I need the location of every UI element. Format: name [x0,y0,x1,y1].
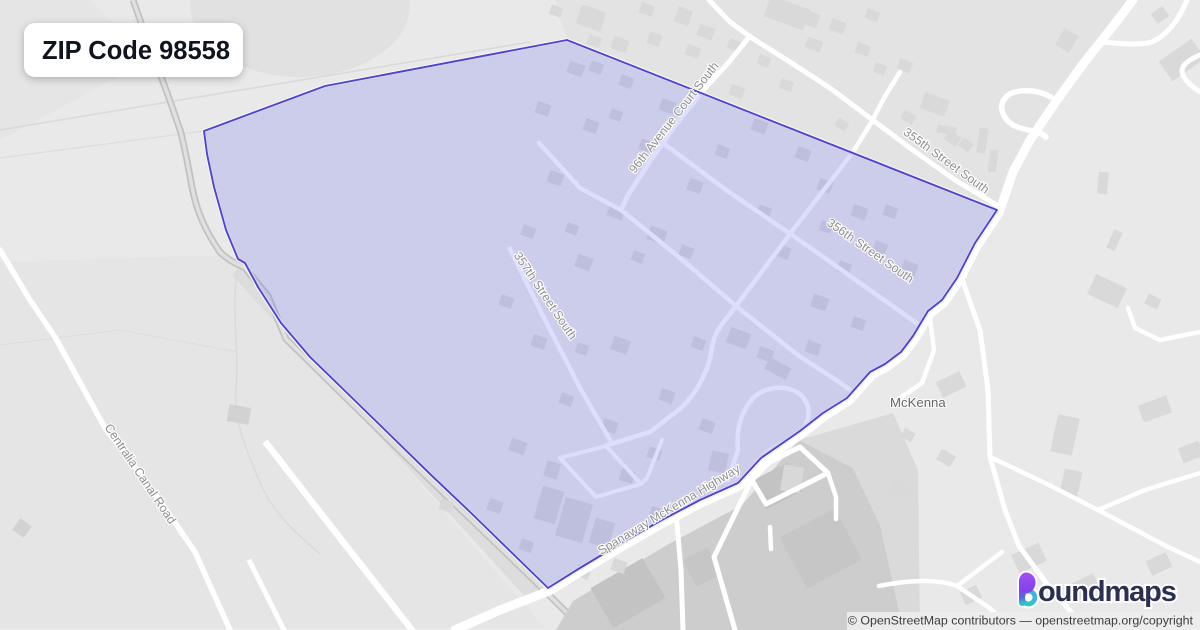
svg-text:ZIP Code 98558: ZIP Code 98558 [42,37,230,65]
svg-text:© OpenStreetMap contributors —: © OpenStreetMap contributors — openstree… [848,614,1194,628]
svg-text:McKenna: McKenna [890,395,946,410]
svg-text:oundmaps: oundmaps [1038,576,1176,608]
